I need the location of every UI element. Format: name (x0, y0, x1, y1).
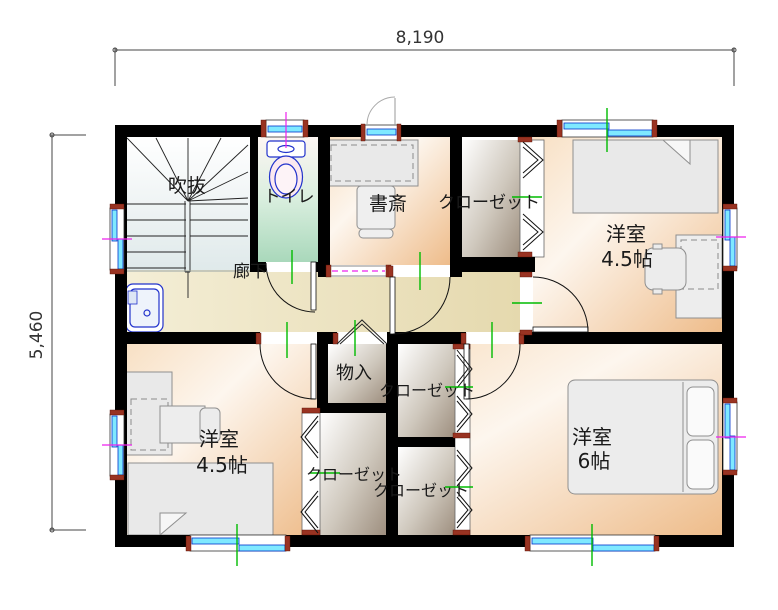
door-study-exterior (365, 97, 398, 140)
label-bedroom-se-size: 6帖 (578, 449, 611, 473)
label-bedroom-ne-size: 4.5帖 (601, 247, 653, 271)
label-hallway: 廊下 (233, 262, 267, 282)
label-storage: 物入 (336, 363, 372, 384)
dimension-left (50, 133, 86, 532)
window-toilet (266, 120, 304, 137)
room-hallway (127, 270, 520, 332)
window-bottom-left (190, 535, 286, 551)
washbasin-icon (126, 284, 163, 332)
label-closet-se: クローゼット (373, 481, 469, 500)
label-closet-top: クローゼット (438, 193, 540, 213)
floor-plan-page: 8,190 5,460 (0, 0, 778, 610)
window-right-upper (723, 208, 737, 268)
label-bedroom-se-name: 洋室 (572, 425, 612, 449)
label-bedroom-ne-name: 洋室 (606, 222, 646, 246)
interior-window (330, 266, 387, 276)
bed-ne (573, 140, 718, 213)
label-void: 吹抜 (168, 175, 206, 197)
pillow (687, 387, 714, 436)
label-bedroom-sw-size: 4.5帖 (196, 453, 248, 477)
dimension-height-label: 5,460 (27, 311, 47, 360)
label-bedroom-sw-name: 洋室 (199, 427, 239, 451)
pillow (687, 440, 714, 489)
dimension-width-label: 8,190 (396, 28, 445, 48)
floor-plan: 8,190 5,460 (0, 0, 778, 610)
label-study: 書斎 (369, 193, 407, 215)
dimension-top (113, 48, 736, 86)
label-closet-mid: クローゼット (379, 381, 475, 400)
label-toilet: トイレ (264, 187, 315, 207)
